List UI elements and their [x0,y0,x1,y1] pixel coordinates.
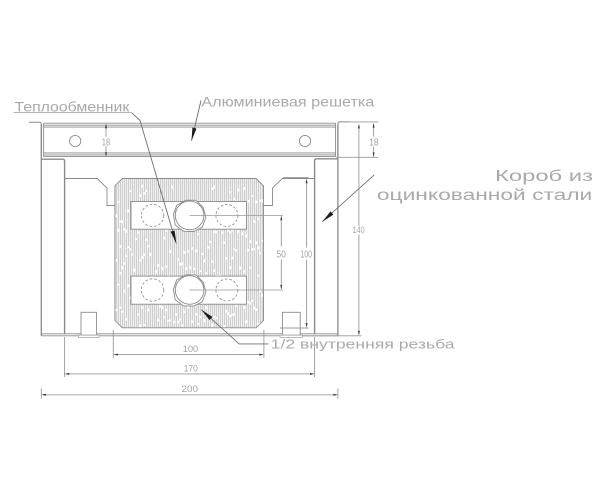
svg-text:170: 170 [184,363,198,373]
svg-text:18: 18 [369,138,379,149]
svg-text:200: 200 [182,384,199,394]
svg-text:100: 100 [183,344,198,354]
svg-text:18: 18 [102,137,111,148]
svg-text:Теплообменник: Теплообменник [15,98,131,114]
svg-text:Алюминиевая решетка: Алюминиевая решетка [201,93,374,109]
svg-text:Короб из: Короб из [495,168,593,185]
svg-text:50: 50 [277,249,287,260]
svg-text:140: 140 [353,225,365,235]
svg-text:1/2 внутренняя резьба: 1/2 внутренняя резьба [271,338,455,352]
svg-text:100: 100 [300,249,312,260]
svg-text:оцинкованной стали: оцинкованной стали [377,187,592,204]
